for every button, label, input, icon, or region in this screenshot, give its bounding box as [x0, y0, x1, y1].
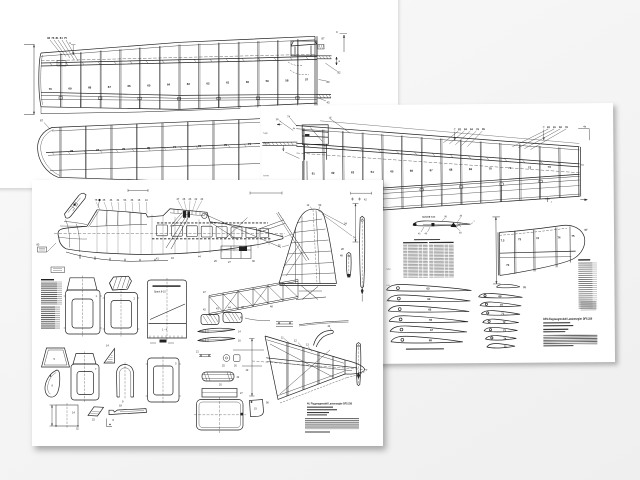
- svg-text:75: 75: [147, 146, 151, 150]
- svg-text:94: 94: [470, 127, 473, 131]
- svg-text:66: 66: [128, 84, 132, 88]
- svg-text:59: 59: [266, 79, 270, 83]
- svg-text:8: 8: [113, 419, 115, 422]
- svg-text:71: 71: [248, 142, 252, 146]
- svg-text:11: 11: [281, 337, 284, 340]
- svg-text:35: 35: [278, 245, 281, 248]
- svg-text:26: 26: [214, 260, 217, 263]
- svg-text:66: 66: [410, 169, 414, 173]
- svg-text:DFS-Flugzeugmodell Lastensegle: DFS-Flugzeugmodell Lastensegler DFS 230: [543, 317, 592, 321]
- svg-text:64: 64: [371, 170, 375, 174]
- svg-text:75: 75: [572, 234, 576, 238]
- svg-text:48: 48: [340, 255, 343, 258]
- svg-text:70: 70: [49, 87, 53, 91]
- svg-text:Schnitt: Schnitt: [263, 174, 269, 177]
- svg-text:60: 60: [246, 80, 250, 84]
- svg-text:71: 71: [508, 166, 512, 170]
- svg-text:a: a: [339, 60, 341, 63]
- svg-text:72: 72: [224, 143, 228, 147]
- svg-text:46. Flugzeugmodell Lastensegle: 46. Flugzeugmodell Lastensegler DFS 230: [307, 402, 352, 406]
- svg-text:14: 14: [106, 345, 109, 348]
- svg-text:12: 12: [307, 204, 310, 207]
- svg-text:76: 76: [565, 125, 568, 129]
- svg-text:72: 72: [528, 165, 532, 169]
- svg-text:19: 19: [254, 408, 257, 411]
- svg-text:4a: 4a: [583, 124, 586, 128]
- svg-text:62: 62: [331, 171, 335, 175]
- svg-text:74: 74: [287, 115, 291, 119]
- svg-text:68: 68: [449, 168, 453, 172]
- svg-text:Schn.: Schn.: [386, 269, 391, 271]
- svg-text:3: 3: [175, 362, 177, 366]
- svg-text:58: 58: [285, 78, 289, 82]
- svg-text:72: 72: [506, 263, 510, 267]
- svg-text:46: 46: [459, 231, 462, 234]
- svg-text:5: 5: [54, 357, 56, 361]
- svg-text:10: 10: [145, 199, 148, 202]
- svg-text:14: 14: [238, 331, 241, 334]
- svg-text:42: 42: [328, 325, 331, 328]
- svg-text:41: 41: [156, 258, 159, 261]
- svg-text:90: 90: [266, 402, 269, 405]
- svg-text:15: 15: [92, 419, 95, 422]
- svg-text:48: 48: [270, 306, 273, 309]
- svg-text:16: 16: [238, 340, 241, 343]
- svg-text:69: 69: [68, 86, 72, 90]
- svg-text:Schnitt C-D: Schnitt C-D: [422, 216, 435, 219]
- svg-text:76: 76: [122, 147, 126, 151]
- svg-text:63: 63: [187, 82, 191, 86]
- svg-text:2: 2: [134, 297, 136, 301]
- svg-text:46: 46: [424, 232, 427, 235]
- svg-text:80: 80: [327, 80, 330, 84]
- svg-text:22: 22: [195, 198, 198, 201]
- svg-text:C: C: [336, 30, 338, 34]
- svg-text:70: 70: [489, 167, 493, 171]
- svg-text:77: 77: [96, 148, 100, 152]
- svg-text:65: 65: [147, 84, 151, 88]
- svg-text:74: 74: [173, 145, 177, 149]
- svg-text:68: 68: [429, 338, 433, 342]
- svg-text:53: 53: [124, 199, 127, 202]
- svg-text:24: 24: [201, 198, 204, 201]
- svg-text:65: 65: [428, 307, 432, 311]
- svg-text:45: 45: [418, 232, 421, 235]
- svg-text:32: 32: [76, 428, 79, 431]
- svg-text:47: 47: [203, 291, 206, 294]
- svg-text:69: 69: [469, 167, 473, 171]
- svg-text:13: 13: [306, 344, 309, 347]
- svg-text:63: 63: [351, 170, 355, 174]
- svg-text:66: 66: [429, 318, 433, 322]
- svg-text:75: 75: [95, 199, 98, 202]
- svg-text:C: C: [69, 41, 71, 45]
- svg-text:80: 80: [37, 244, 40, 247]
- svg-text:76: 76: [51, 36, 54, 40]
- svg-text:43: 43: [327, 101, 330, 105]
- svg-text:83: 83: [47, 36, 50, 40]
- svg-text:34: 34: [117, 199, 120, 202]
- svg-text:28: 28: [341, 248, 344, 251]
- svg-text:Spant 8-10: Spant 8-10: [154, 291, 166, 294]
- svg-text:44: 44: [237, 376, 240, 379]
- svg-text:64: 64: [427, 297, 431, 301]
- svg-text:18: 18: [119, 405, 122, 408]
- svg-text:95: 95: [482, 127, 485, 131]
- svg-text:67: 67: [430, 168, 434, 172]
- svg-text:36: 36: [252, 260, 255, 263]
- svg-text:20: 20: [219, 384, 222, 387]
- svg-text:76: 76: [558, 235, 562, 239]
- svg-text:21: 21: [196, 351, 199, 354]
- svg-text:81: 81: [553, 125, 556, 129]
- svg-text:27: 27: [228, 261, 231, 264]
- svg-text:27: 27: [240, 392, 243, 395]
- svg-text:36: 36: [459, 214, 462, 217]
- svg-text:61: 61: [226, 81, 230, 85]
- svg-text:1: 1: [96, 294, 98, 298]
- svg-text:87: 87: [40, 119, 43, 123]
- svg-text:83: 83: [458, 127, 461, 131]
- svg-text:67: 67: [584, 228, 588, 232]
- svg-text:74: 74: [536, 236, 540, 240]
- svg-text:C: C: [543, 125, 545, 129]
- svg-text:61: 61: [312, 171, 316, 175]
- svg-text:82: 82: [338, 71, 341, 75]
- svg-text:16: 16: [276, 117, 280, 121]
- svg-text:26: 26: [183, 198, 186, 201]
- svg-text:42: 42: [364, 199, 367, 202]
- svg-text:50: 50: [319, 204, 322, 207]
- svg-text:75: 75: [504, 344, 507, 348]
- svg-text:81: 81: [56, 36, 59, 40]
- svg-text:23: 23: [189, 198, 192, 201]
- svg-text:67: 67: [430, 328, 434, 332]
- svg-text:44: 44: [198, 256, 201, 259]
- svg-text:96: 96: [444, 215, 447, 218]
- svg-text:25: 25: [222, 365, 225, 368]
- svg-text:6: 6: [52, 384, 54, 388]
- svg-text:87: 87: [322, 37, 325, 41]
- svg-text:7: 7: [473, 220, 475, 223]
- svg-text:63: 63: [426, 286, 430, 290]
- svg-text:36: 36: [110, 199, 113, 202]
- svg-text:73: 73: [547, 165, 551, 169]
- svg-text:34: 34: [344, 223, 347, 226]
- svg-text:76: 76: [523, 285, 526, 289]
- svg-text:84: 84: [60, 36, 63, 40]
- svg-text:36: 36: [131, 199, 134, 202]
- svg-text:65: 65: [390, 169, 394, 173]
- svg-text:84: 84: [464, 127, 467, 131]
- svg-text:12: 12: [294, 340, 297, 343]
- svg-text:14: 14: [72, 412, 75, 415]
- svg-text:67: 67: [108, 85, 112, 89]
- svg-text:9: 9: [122, 400, 124, 404]
- svg-text:10: 10: [246, 369, 249, 372]
- svg-text:18: 18: [329, 116, 332, 119]
- svg-text:75: 75: [64, 36, 67, 40]
- svg-text:Tragfl.: Tragfl.: [263, 132, 269, 135]
- svg-text:73: 73: [518, 237, 522, 241]
- svg-text:43: 43: [171, 257, 174, 260]
- svg-text:18: 18: [138, 199, 141, 202]
- svg-text:78: 78: [70, 149, 74, 153]
- svg-text:76: 76: [476, 127, 479, 131]
- svg-text:64: 64: [167, 83, 171, 87]
- svg-text:7.3: 7.3: [501, 238, 505, 242]
- svg-text:7: 7: [95, 367, 97, 371]
- svg-text:26: 26: [234, 365, 237, 368]
- svg-text:83: 83: [547, 125, 550, 129]
- svg-text:62: 62: [206, 81, 210, 85]
- svg-text:1 - 4: 1 - 4: [162, 329, 168, 332]
- svg-text:42: 42: [203, 309, 206, 312]
- svg-text:84: 84: [559, 125, 562, 129]
- svg-text:35: 35: [103, 199, 106, 202]
- svg-text:68: 68: [88, 86, 92, 90]
- svg-text:57: 57: [305, 78, 309, 82]
- svg-text:4x: 4x: [293, 127, 296, 130]
- svg-text:47: 47: [177, 198, 180, 201]
- svg-text:72: 72: [581, 164, 584, 167]
- svg-text:C: C: [454, 127, 456, 131]
- svg-text:43: 43: [216, 308, 219, 311]
- svg-text:73: 73: [198, 144, 202, 148]
- svg-text:7: 7: [551, 201, 553, 204]
